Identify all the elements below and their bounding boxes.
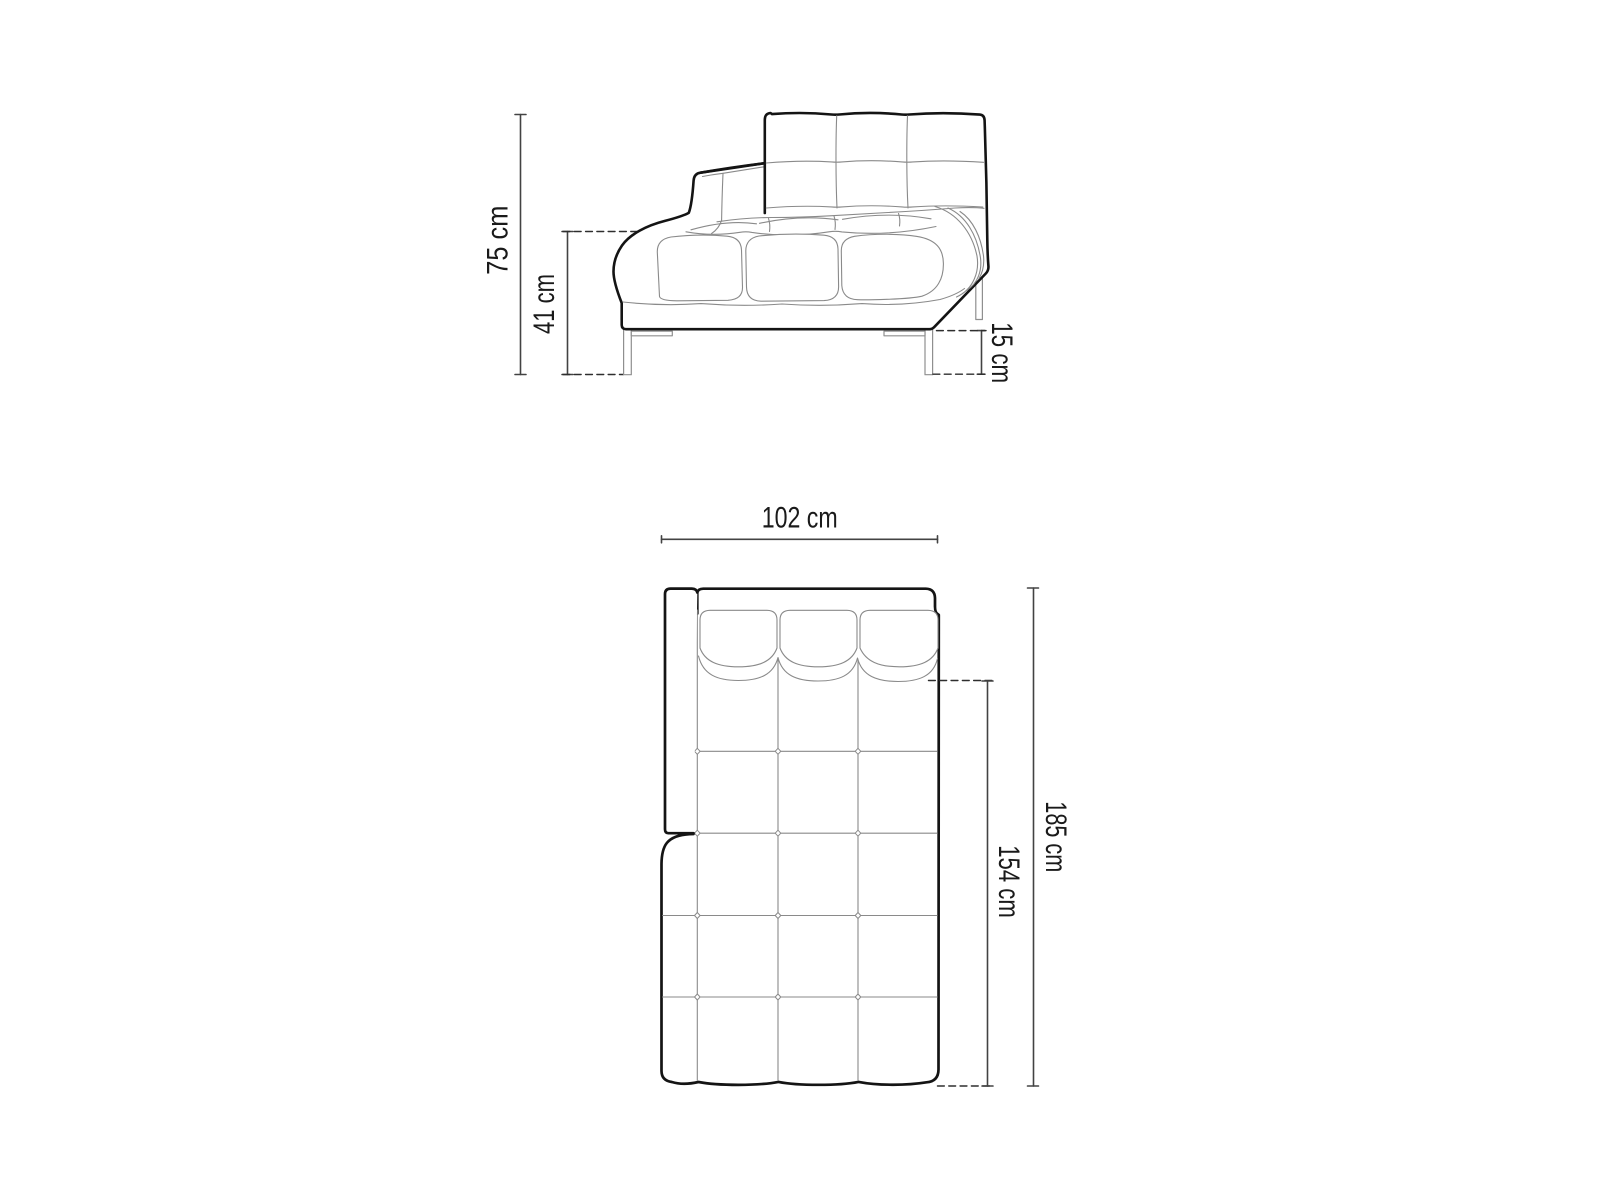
svg-text:15 cm: 15 cm — [985, 322, 1018, 383]
svg-text:102 cm: 102 cm — [762, 501, 838, 534]
svg-text:41 cm: 41 cm — [528, 274, 561, 334]
svg-text:185 cm: 185 cm — [1039, 801, 1072, 872]
svg-text:75 cm: 75 cm — [481, 206, 514, 275]
svg-text:154 cm: 154 cm — [992, 845, 1025, 918]
